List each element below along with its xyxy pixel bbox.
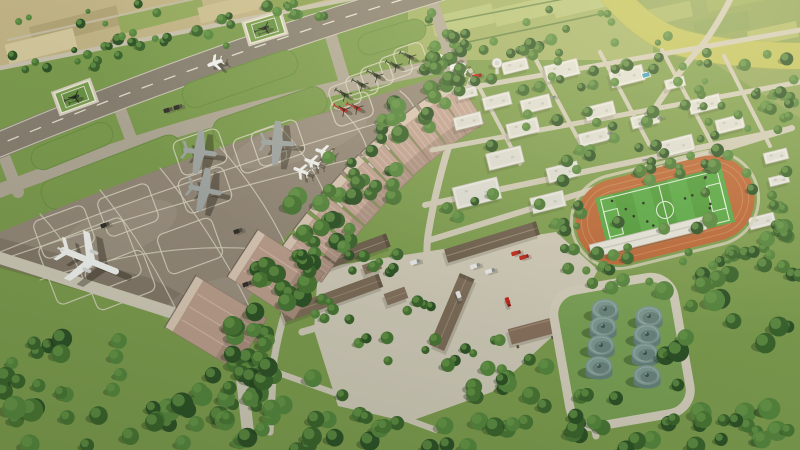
airport-aerial-render	[0, 0, 800, 450]
scene-canvas	[0, 0, 800, 450]
sunlight-haze-overlay	[0, 0, 800, 450]
